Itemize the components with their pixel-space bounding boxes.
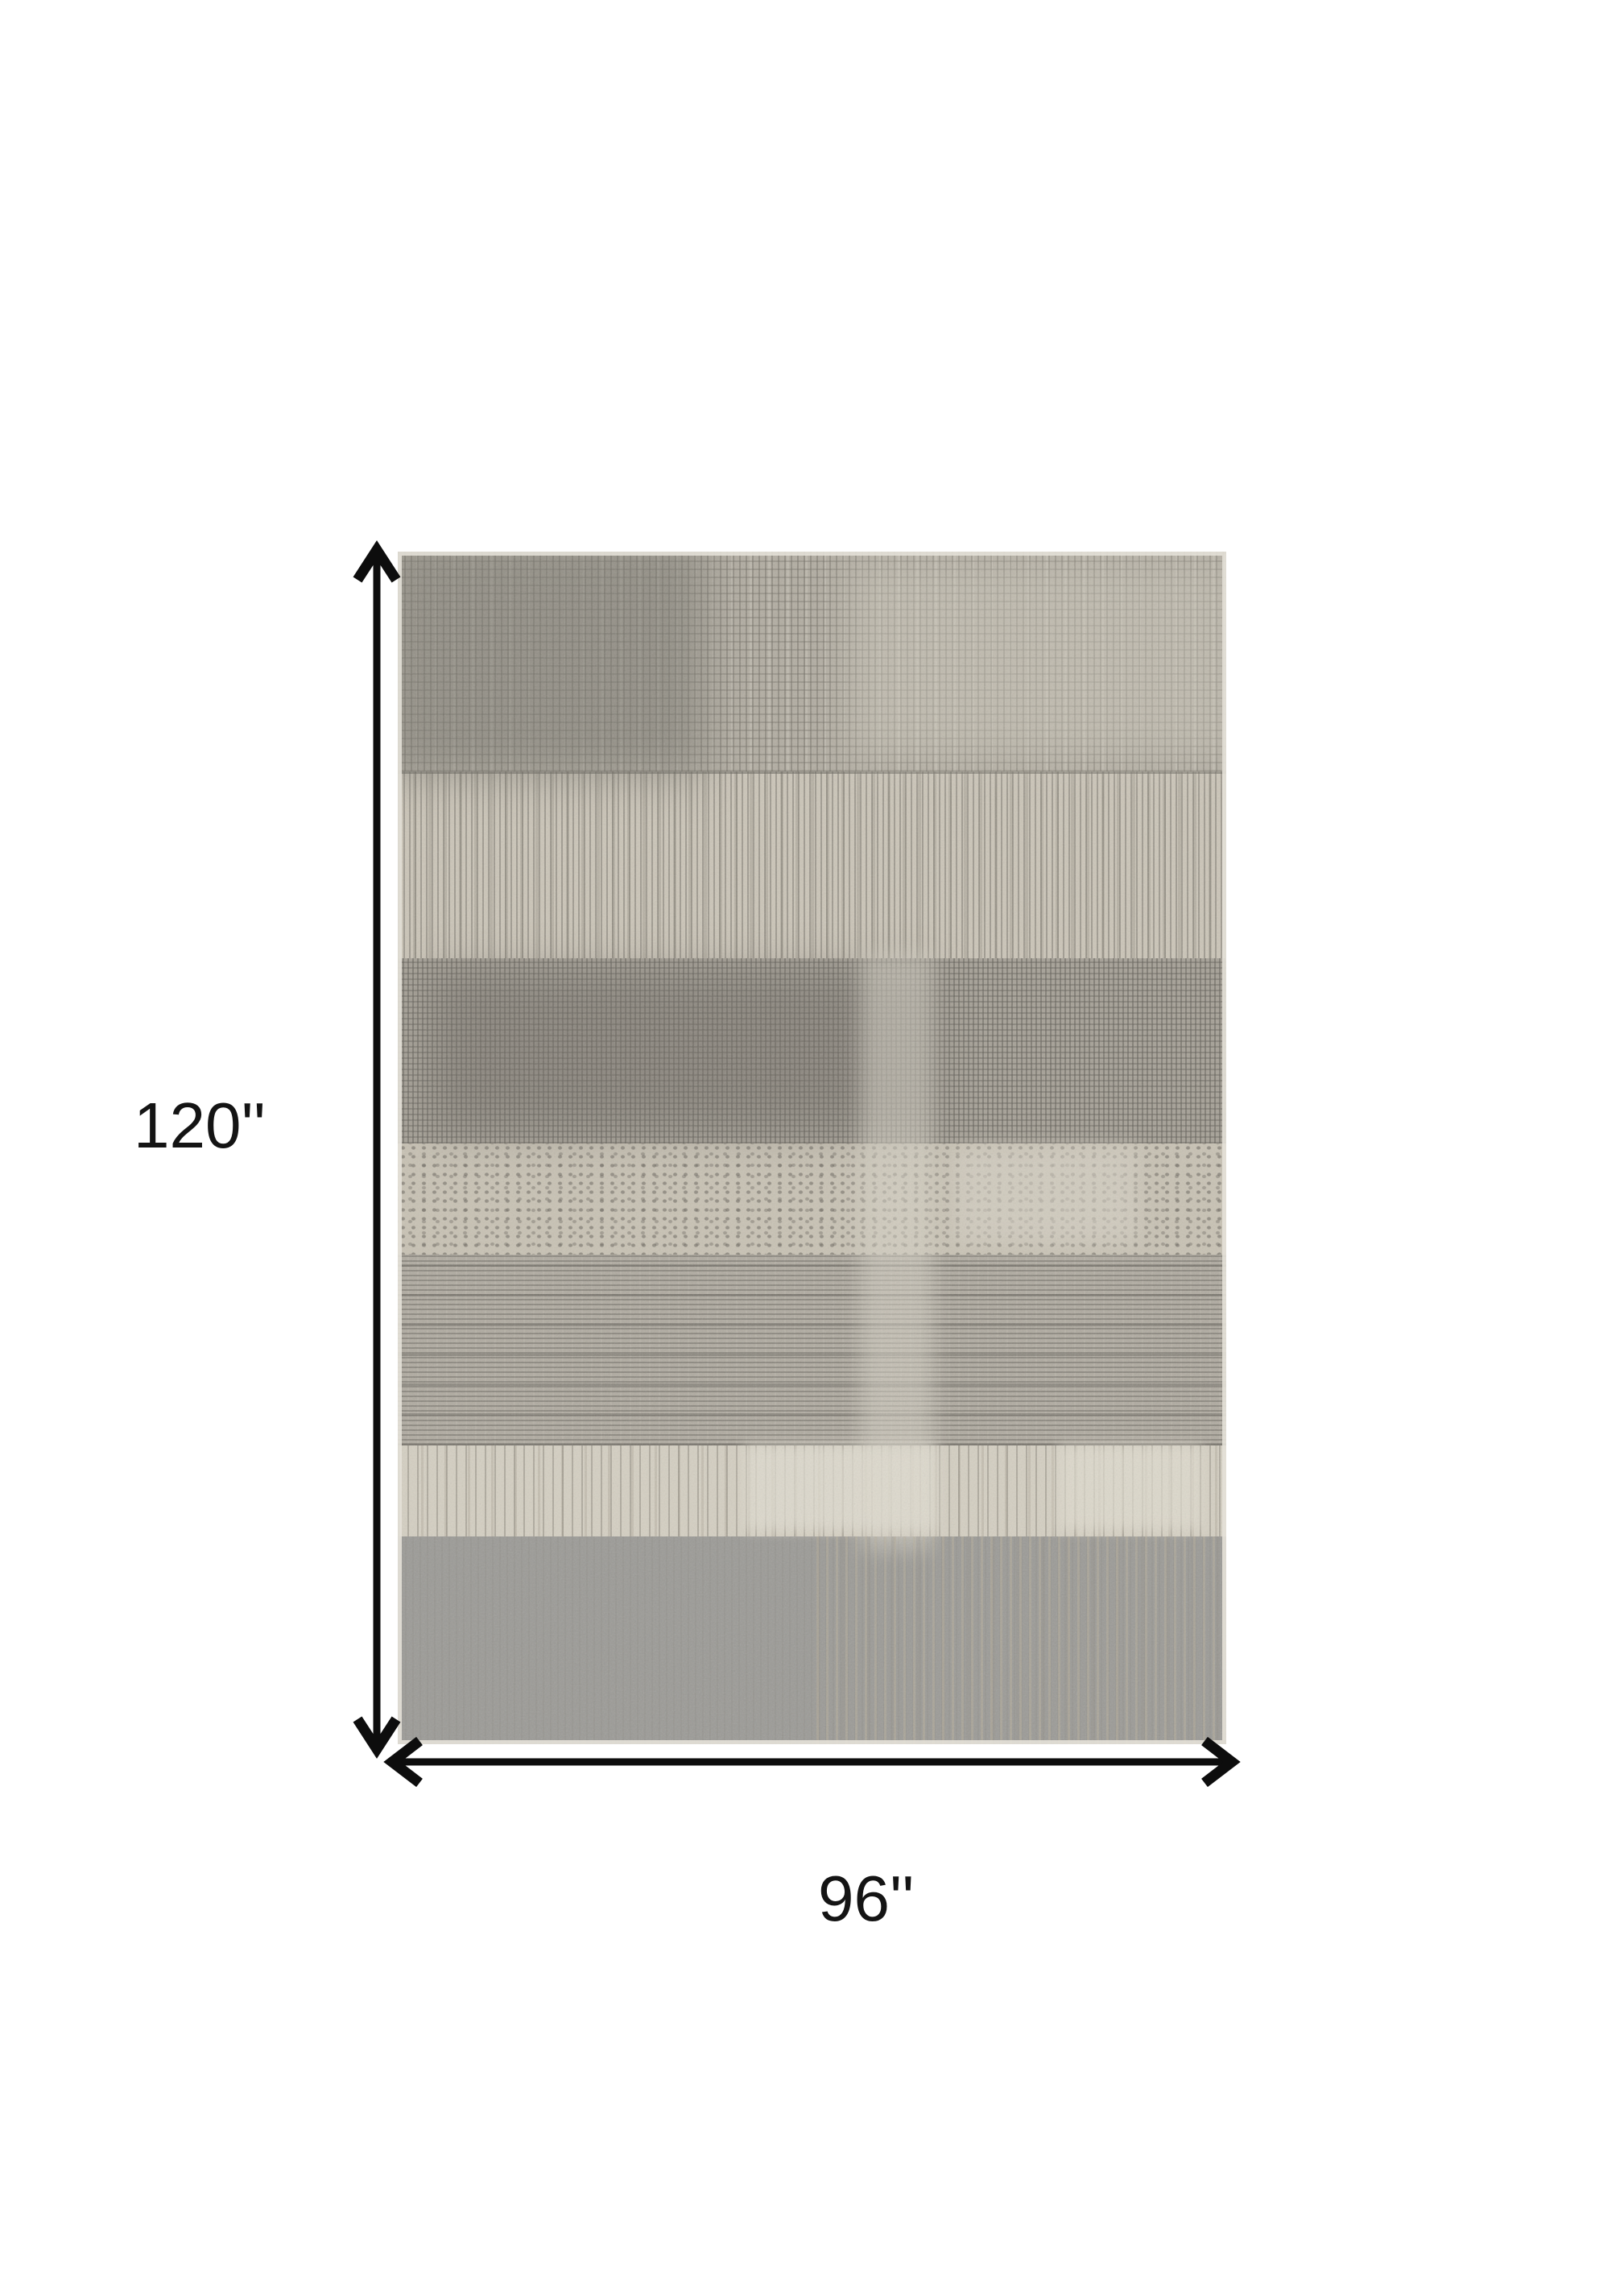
- width-dimension-label: 96'': [818, 1867, 915, 1931]
- height-dimension-label: 120'': [134, 1094, 266, 1158]
- product-image-canvas: 120'' 96'': [0, 0, 1624, 2295]
